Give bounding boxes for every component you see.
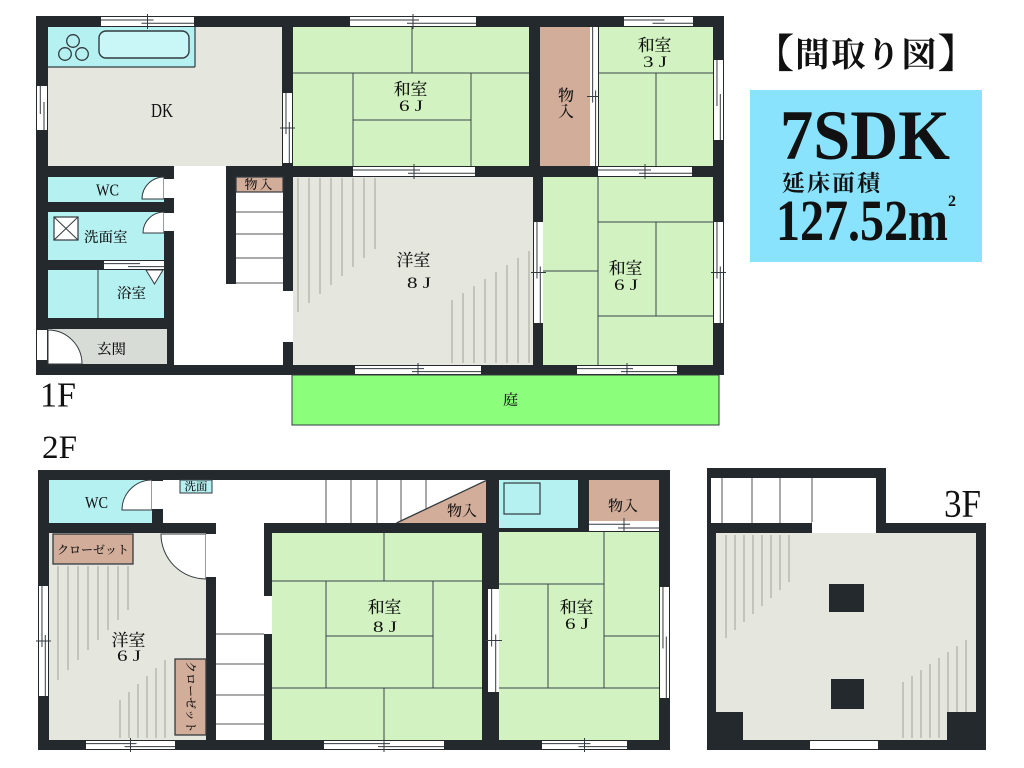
svg-text:3 J: 3 J xyxy=(643,54,667,71)
svg-text:2F: 2F xyxy=(42,430,77,466)
svg-text:7SDK: 7SDK xyxy=(780,97,950,175)
svg-text:1F: 1F xyxy=(40,376,76,415)
svg-text:3F: 3F xyxy=(944,483,981,526)
svg-text:WC: WC xyxy=(85,493,108,512)
svg-text:2: 2 xyxy=(948,193,956,210)
svg-text:6 J: 6 J xyxy=(117,648,141,665)
svg-text:8 J: 8 J xyxy=(407,275,431,292)
svg-text:6 J: 6 J xyxy=(399,98,423,115)
svg-text:8 J: 8 J xyxy=(373,619,397,636)
svg-text:127.52m: 127.52m xyxy=(776,188,948,253)
svg-text:DK: DK xyxy=(151,100,173,122)
svg-text:WC: WC xyxy=(96,181,119,200)
svg-text:6 J: 6 J xyxy=(565,616,589,633)
svg-text:6 J: 6 J xyxy=(614,277,638,294)
